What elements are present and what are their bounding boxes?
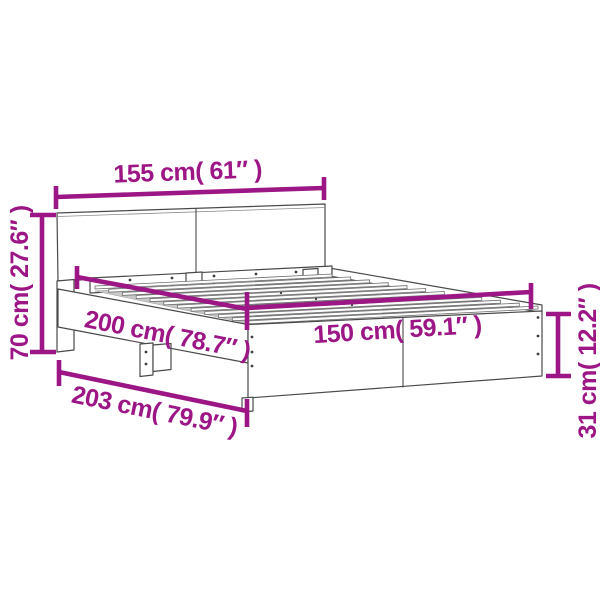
bed-frame-drawing [57,204,542,412]
dimension-headboard-height: 70 cm( 27.6″ ) [6,205,56,360]
side-rail-leg-board-left [140,343,153,377]
screw-dot [315,298,317,300]
dimension-label-headboard-height: 70 cm( 27.6″ ) [6,205,34,360]
screw-dot [251,365,254,368]
screw-dot [145,351,148,354]
bed-dimension-diagram: 155 cm( 61″ ) 70 cm( 27.6″ ) 200 cm( 78.… [0,0,600,600]
screw-dot [280,292,282,294]
screw-dot [537,316,540,319]
screw-dot [171,277,174,280]
screw-dot [129,279,132,282]
screw-dot [537,335,540,338]
screw-dot [213,275,216,278]
dimension-headboard-width: 155 cm( 61″ ) [56,155,324,209]
screw-dot [295,271,298,274]
dimension-label-side-rail-height: 31 cm( 12.2″ ) [574,283,600,438]
screw-dot [145,363,148,366]
dimension-label-headboard-width: 155 cm( 61″ ) [113,155,263,188]
dimension-side-rail-height: 31 cm( 12.2″ ) [546,283,600,438]
screw-dot [255,273,258,276]
screw-dot [537,353,540,356]
dimension-line-side-rail-height [546,314,571,376]
screw-dot [251,351,254,354]
